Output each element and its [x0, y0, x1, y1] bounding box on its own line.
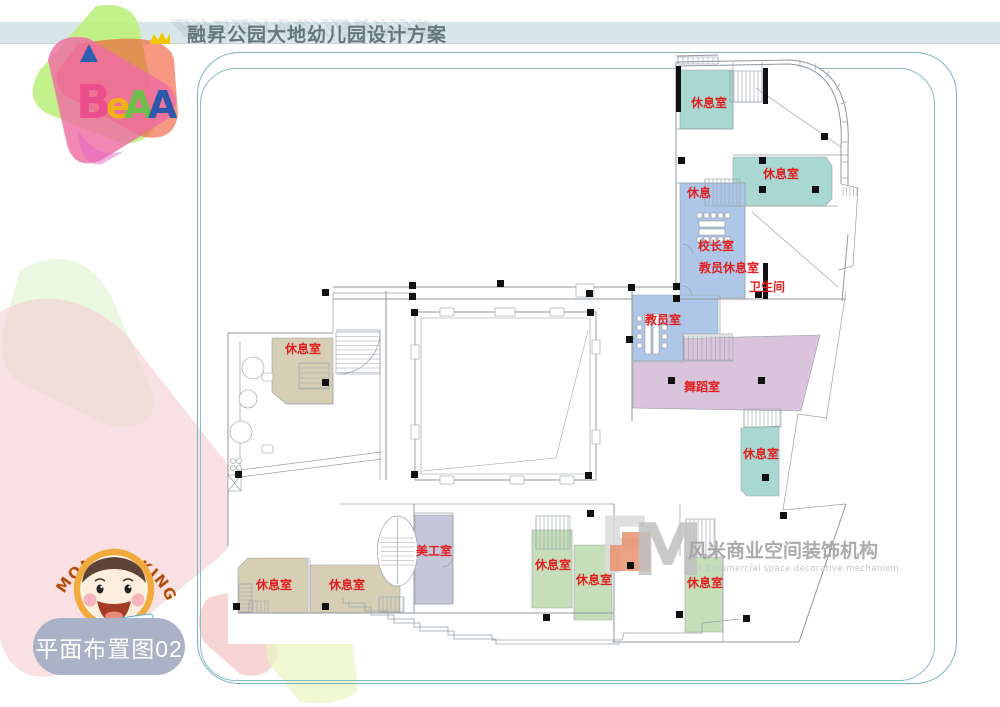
column-marker: [587, 510, 594, 517]
column-marker: [497, 280, 504, 287]
column-marker: [759, 157, 766, 164]
room-label: 校长室: [698, 238, 734, 253]
column-marker: [758, 377, 765, 384]
room-fill: [415, 515, 453, 604]
column-marker: [587, 309, 594, 316]
column-marker: [673, 295, 680, 302]
column-marker: [678, 157, 685, 164]
room-label: 卫生间: [749, 279, 785, 294]
column-marker: [673, 283, 680, 290]
room-label: 休息室: [328, 577, 365, 592]
column-marker: [409, 282, 416, 289]
room-label: 休息室: [762, 166, 799, 181]
room-label: 休息室: [742, 446, 779, 461]
column-marker: [668, 377, 675, 384]
watermark-cn-text: 风米商业空间装饰机构: [688, 539, 878, 562]
monkey-eye-left: [97, 585, 104, 594]
column-marker: [411, 309, 418, 316]
column-marker: [409, 293, 416, 300]
eye-highlight-right: [128, 586, 130, 588]
column-marker: [762, 474, 769, 481]
column-marker: [235, 471, 242, 478]
column-marker: [780, 512, 787, 519]
room-fill: [733, 157, 832, 206]
logo-letter-a2: A: [148, 83, 178, 127]
monkey-eye-right: [125, 585, 132, 594]
watermark-en-text: F.M Commercial space decorative mechanis…: [688, 564, 899, 574]
room-label: 休息室: [686, 575, 723, 590]
column-marker: [743, 615, 750, 622]
column-marker: [586, 290, 593, 297]
column-marker: [626, 336, 633, 343]
room-label: 休息室: [284, 341, 321, 356]
sheet-label-pill: 平面布置图02: [33, 618, 185, 675]
room-label: 美工室: [416, 543, 452, 558]
column-marker: [812, 186, 819, 193]
room-label: 舞蹈室: [683, 379, 720, 394]
room-label: 休息室: [255, 577, 292, 592]
design-board: { "header": { "title": "融昇公园大地幼儿园设计方案" }…: [0, 0, 1000, 707]
logo-crown-icon: [150, 32, 170, 44]
room-fill: [741, 426, 779, 496]
column-marker: [543, 614, 550, 621]
column-marker: [627, 562, 634, 569]
column-marker: [628, 284, 635, 291]
eye-highlight-left: [100, 586, 102, 588]
room-label: 休息: [686, 185, 711, 200]
sheet-label: 平面布置图02: [35, 630, 183, 664]
room-label: 教员室: [644, 312, 681, 327]
oval-stair: [378, 516, 418, 586]
column-marker: [585, 472, 592, 479]
column-marker: [322, 603, 329, 610]
column-marker: [821, 133, 828, 140]
room-label: 休息室: [575, 572, 612, 587]
column-marker: [759, 186, 766, 193]
room-label: 教员休息室: [698, 260, 759, 275]
column-marker: [322, 289, 329, 296]
monkey-cheek-left: [84, 594, 97, 607]
column-marker: [676, 611, 683, 618]
column-marker: [233, 603, 240, 610]
brand-logo: B e A A: [18, 2, 208, 174]
column-marker: [411, 471, 418, 478]
column-marker: [322, 379, 329, 386]
room-label: 休息室: [690, 95, 727, 110]
monkey-cheek-right: [132, 594, 145, 607]
room-label: 休息室: [534, 557, 571, 572]
